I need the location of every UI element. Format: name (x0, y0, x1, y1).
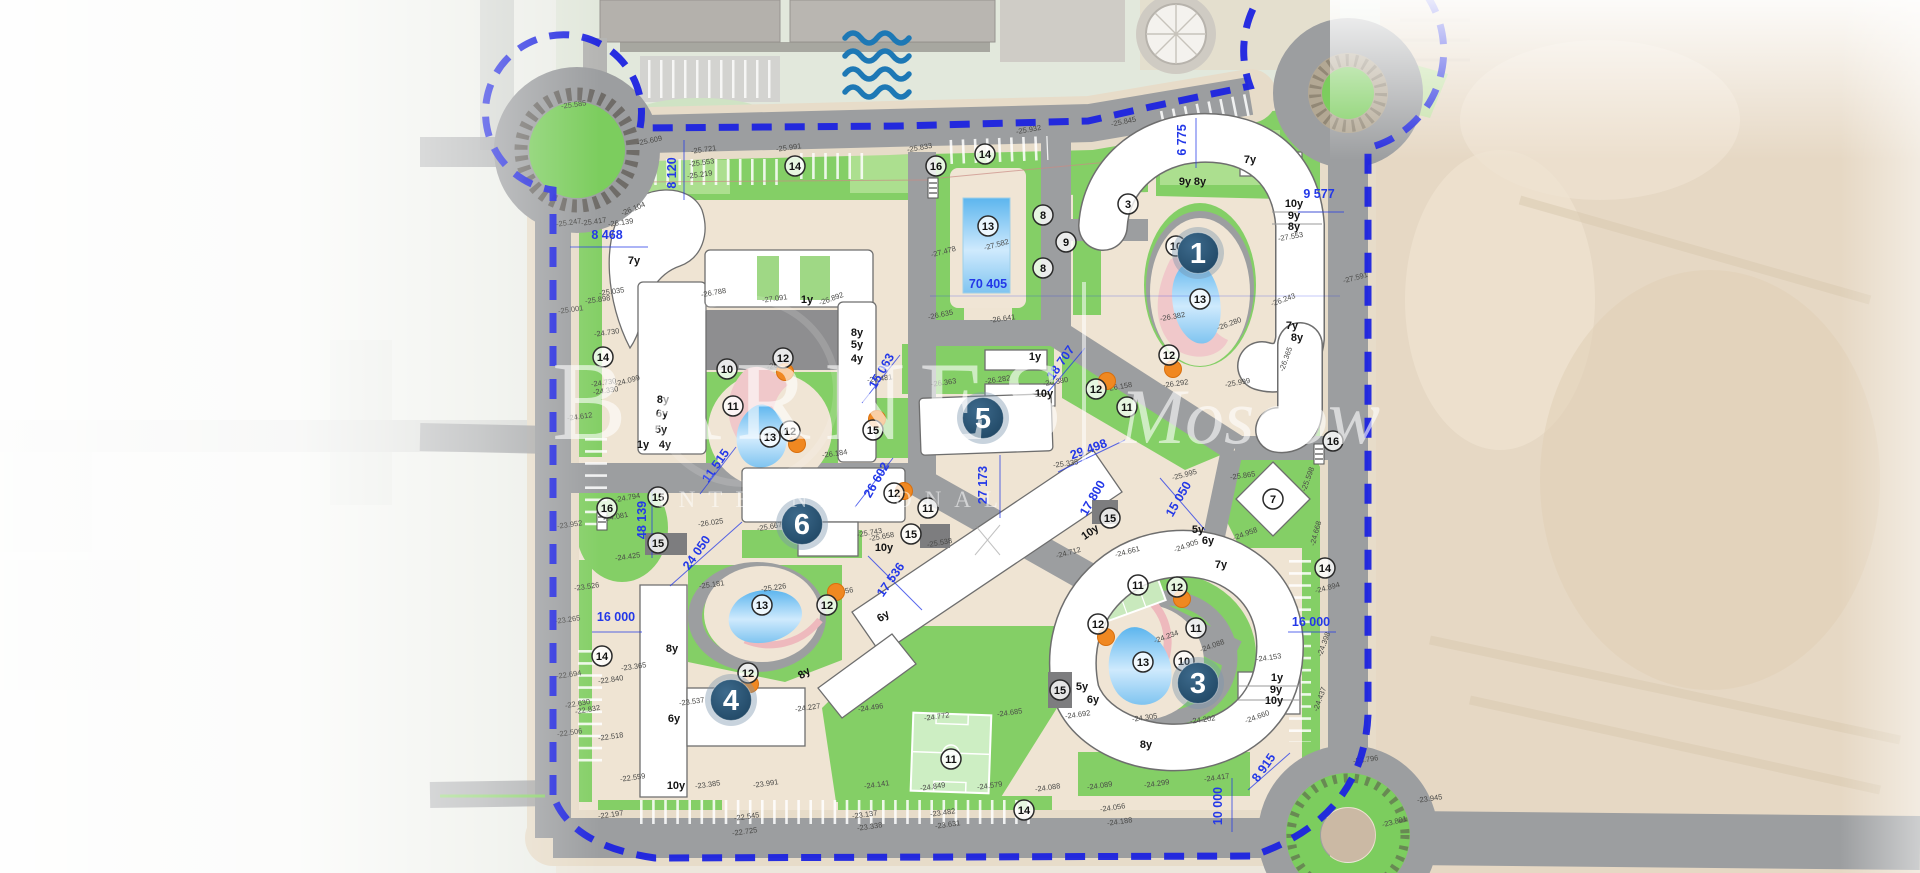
amenity-circle-8: 8 (1033, 258, 1053, 278)
floor-count-label: 8y (1194, 176, 1207, 188)
amenity-circle-10: 10 (717, 359, 737, 379)
amenity-circle-number: 11 (727, 401, 739, 413)
floor-count-label: 10y (1285, 198, 1304, 210)
watermark-separator (1082, 282, 1086, 474)
floor-count-label: 8y (666, 643, 679, 655)
amenity-circle-number: 12 (1092, 619, 1104, 631)
amenity-circle-number: 16 (1327, 436, 1339, 448)
amenity-circle-number: 14 (979, 149, 992, 161)
amenity-circle-number: 12 (1163, 350, 1175, 362)
floor-count-label: 8y (1288, 221, 1301, 233)
unit-marker-6[interactable]: 6 (776, 498, 828, 550)
amenity-circle-12: 12 (817, 595, 837, 615)
dimension-label: 16 000 (597, 610, 635, 624)
amenity-circle-number: 16 (601, 503, 613, 515)
amenity-circle-8: 8 (1033, 205, 1053, 225)
building4-west (640, 585, 687, 797)
amenity-circle-number: 8 (1040, 263, 1046, 275)
amenity-circle-number: 15 (1104, 513, 1116, 525)
amenity-circle-7: 7 (1263, 489, 1283, 509)
floor-count-label: 1y (1271, 672, 1284, 684)
amenity-circle-number: 14 (789, 161, 802, 173)
amenity-circle-number: 8 (1040, 210, 1046, 222)
amenity-circle-13: 13 (760, 427, 780, 447)
amenity-circle-11: 11 (1186, 618, 1206, 638)
amenity-circle-16: 16 (1323, 431, 1343, 451)
amenity-circle-number: 15 (1054, 685, 1066, 697)
amenity-circle-11: 11 (1117, 397, 1137, 417)
amenity-circle-number: 15 (652, 538, 664, 550)
floor-count-label: 10y (667, 780, 686, 792)
amenity-circle-number: 11 (922, 503, 934, 515)
amenity-circle-12: 12 (1167, 577, 1187, 597)
floor-count-label: 1y (801, 294, 814, 306)
amenity-circle-12: 12 (1159, 345, 1179, 365)
right-edge-fade (1840, 0, 1920, 873)
amenity-circle-15: 15 (1100, 508, 1120, 528)
floor-count-label: 8y (1291, 332, 1304, 344)
floor-count-label: 10y (875, 542, 894, 554)
amenity-circle-number: 13 (982, 221, 994, 233)
amenity-circle-15: 15 (648, 487, 668, 507)
amenity-circle-15: 15 (648, 533, 668, 553)
floor-count-label: 5y (655, 424, 668, 436)
amenity-circle-16: 16 (926, 156, 946, 176)
amenity-circle-number: 14 (1319, 563, 1332, 575)
amenity-circle-number: 12 (777, 353, 789, 365)
amenity-circle-number: 12 (1090, 384, 1102, 396)
floor-count-label: 7y (628, 255, 641, 267)
top-right-fade (1330, 0, 1920, 160)
dimension-label: 9 577 (1303, 187, 1334, 201)
amenity-circle-number: 14 (1018, 805, 1031, 817)
amenity-circle-13: 13 (978, 216, 998, 236)
floor-count-label: 10y (1035, 388, 1054, 400)
left-fade (0, 0, 600, 873)
amenity-circle-11: 11 (941, 749, 961, 769)
amenity-circle-number: 15 (652, 492, 664, 504)
floor-count-label: 6y (1087, 694, 1100, 706)
amenity-circle-12: 12 (884, 483, 904, 503)
amenity-circle-number: 16 (930, 161, 942, 173)
dimension-label: 8 120 (665, 157, 679, 188)
floor-count-label: 8y (1140, 739, 1153, 751)
unit-marker-number: 5 (975, 403, 991, 435)
amenity-circle-12: 12 (780, 421, 800, 441)
amenity-circle-11: 11 (1128, 575, 1148, 595)
amenity-circle-12: 12 (773, 348, 793, 368)
floor-count-label: 5y (1076, 681, 1089, 693)
amenity-circle-number: 9 (1063, 237, 1069, 249)
floor-count-label: 5y (851, 339, 864, 351)
amenity-circle-number: 13 (1194, 294, 1206, 306)
amenity-circle-number: 13 (764, 432, 776, 444)
amenity-circle-12: 12 (1088, 614, 1108, 634)
amenity-circle-3: 3 (1118, 194, 1138, 214)
amenity-circle-13: 13 (752, 595, 772, 615)
floor-count-label: 7y (1286, 320, 1299, 332)
unit-marker-number: 4 (723, 685, 739, 717)
dimension-label: 48 139 (635, 501, 649, 539)
unit-marker-number: 3 (1190, 668, 1206, 700)
floor-count-label: 4y (659, 439, 672, 451)
amenity-circle-number: 11 (1121, 402, 1133, 414)
unit-marker-number: 6 (794, 509, 810, 541)
amenity-circle-number: 13 (1137, 657, 1149, 669)
amenity-circle-9: 9 (1056, 232, 1076, 252)
amenity-circle-14: 14 (1014, 800, 1034, 820)
unit-marker-number: 1 (1190, 238, 1206, 270)
amenity-circle-number: 15 (905, 529, 917, 541)
amenity-circle-15: 15 (901, 524, 921, 544)
amenity-circle-13: 13 (1133, 652, 1153, 672)
amenity-circle-number: 11 (1190, 623, 1202, 635)
amenity-circle-12: 12 (1086, 379, 1106, 399)
floor-count-label: 8y (657, 394, 670, 406)
amenity-circle-11: 11 (723, 396, 743, 416)
amenity-circle-11: 11 (918, 498, 938, 518)
amenity-circle-number: 15 (867, 425, 879, 437)
amenity-circle-number: 12 (784, 426, 796, 438)
unit-marker-1[interactable]: 1 (1172, 227, 1224, 279)
amenity-circle-number: 12 (1171, 582, 1183, 594)
amenity-circle-15: 15 (863, 420, 883, 440)
floor-count-label: 6y (656, 408, 669, 420)
amenity-circle-number: 12 (888, 488, 900, 500)
building-west-slab (638, 282, 706, 454)
floor-count-label: 1y (1029, 351, 1042, 363)
master-plan-map: -25.585-25.609-25.721-25.991-25.553-25.2… (0, 0, 1920, 873)
amenity-circle-number: 7 (1270, 494, 1276, 506)
amenity-circle-number: 13 (756, 600, 768, 612)
floor-count-label: 9y (1179, 176, 1192, 188)
building6-north (705, 250, 873, 307)
amenity-circle-15: 15 (1050, 680, 1070, 700)
amenity-circle-number: 10 (721, 364, 733, 376)
amenity-circle-14: 14 (785, 156, 805, 176)
unit-marker-5[interactable]: 5 (957, 392, 1009, 444)
amenity-circle-14: 14 (1315, 558, 1335, 578)
site-plan-scene: -25.585-25.609-25.721-25.991-25.553-25.2… (0, 0, 1920, 873)
dimension-label: 6 775 (1175, 124, 1189, 155)
floor-count-label: 10y (1265, 695, 1284, 707)
amenity-circle-number: 11 (1132, 580, 1144, 592)
amenity-circle-13: 13 (1190, 289, 1210, 309)
dimension-label: 16 000 (1292, 615, 1330, 629)
floor-count-label: 7y (1244, 154, 1257, 166)
amenity-circle-number: 3 (1125, 199, 1131, 211)
dimension-label: 27 173 (976, 466, 990, 504)
amenity-circle-14: 14 (975, 144, 995, 164)
amenity-circle-number: 12 (821, 600, 833, 612)
unit-marker-4[interactable]: 4 (705, 674, 757, 726)
dimension-label: 70 405 (969, 277, 1007, 291)
unit-marker-3[interactable]: 3 (1172, 657, 1224, 709)
floor-count-label: 7y (1215, 559, 1228, 571)
floor-count-label: 6y (668, 713, 681, 725)
dimension-label: 10 000 (1211, 787, 1225, 825)
floor-count-label: 4y (851, 353, 864, 365)
amenity-circle-number: 11 (945, 754, 957, 766)
floor-count-label: 1y (637, 439, 650, 451)
floor-count-label: 8y (851, 327, 864, 339)
floor-count-label: 6y (1202, 535, 1215, 547)
